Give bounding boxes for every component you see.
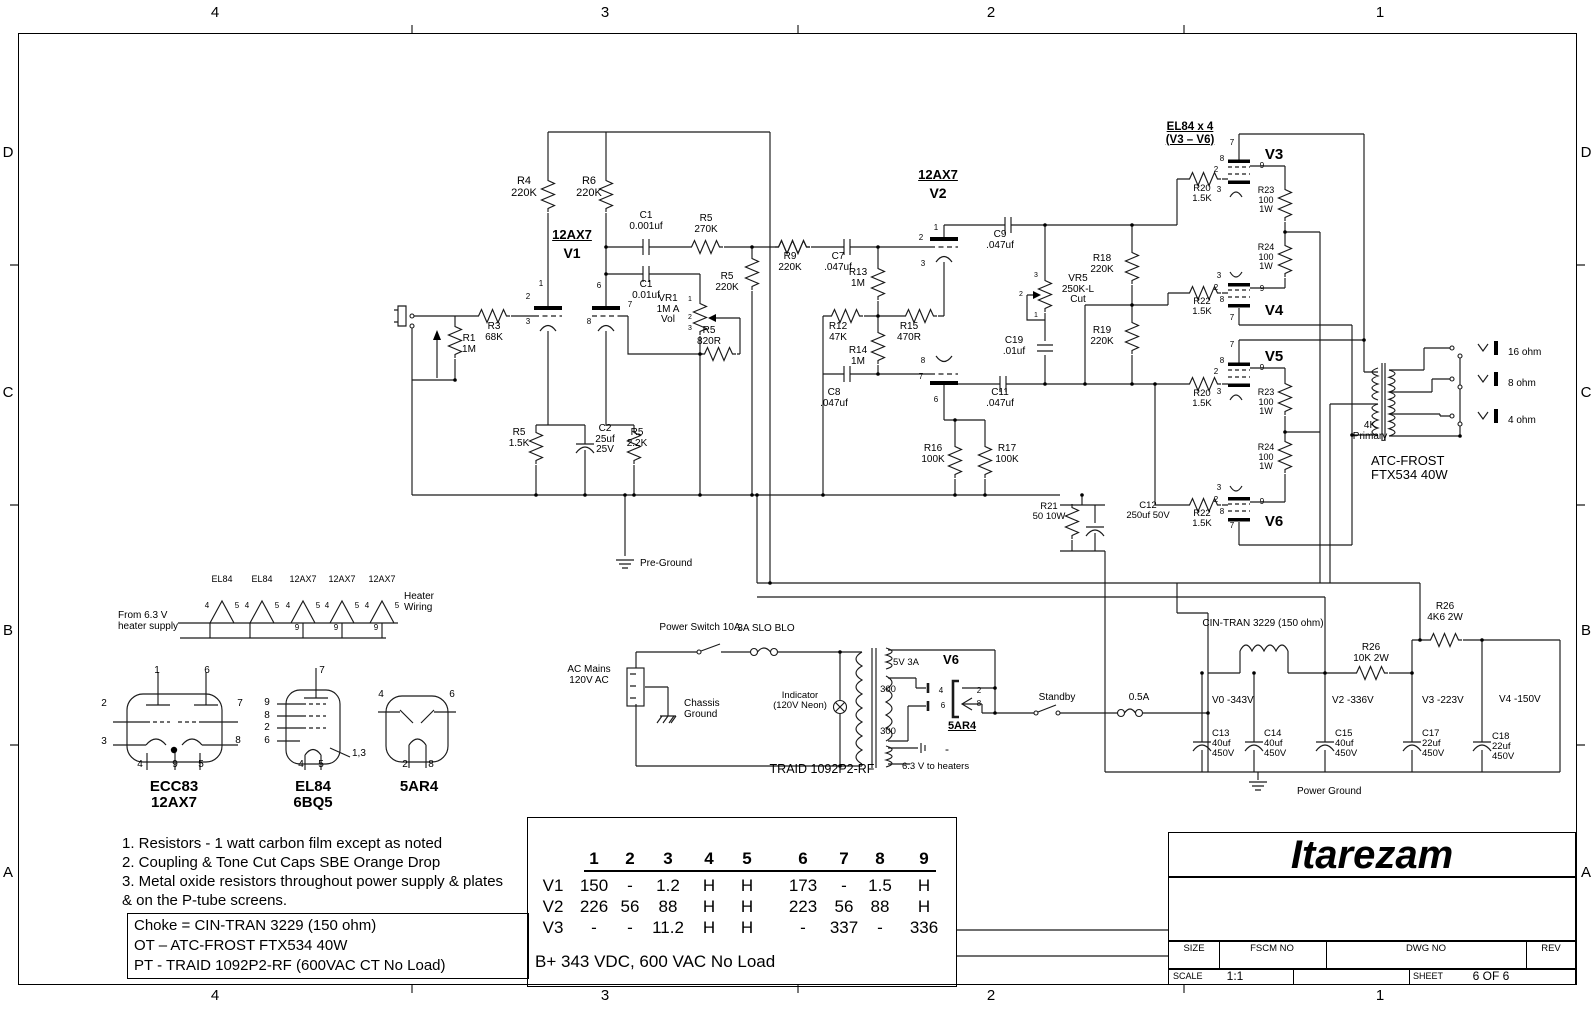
vt-cell: H xyxy=(703,897,715,917)
r12-label: R12 47K xyxy=(829,322,847,343)
r22a-label: R22 1.5K xyxy=(1192,297,1212,317)
sch-label: 8 xyxy=(587,318,591,327)
sch-label: 3 xyxy=(1217,484,1221,493)
v2-name: V2 xyxy=(929,186,946,201)
c13-label: C13 40uf 450V xyxy=(1212,729,1234,759)
sch-label: 1 xyxy=(934,224,938,233)
vt-cell: 1.2 xyxy=(656,876,680,896)
vt-cell: 150 xyxy=(580,876,608,896)
sch-label: 7 xyxy=(319,666,325,677)
sch-label: 4 xyxy=(378,690,384,701)
c18-label: C18 22uf 450V xyxy=(1492,732,1514,762)
power-transformer-icon xyxy=(856,648,892,768)
sch-label: 6 xyxy=(204,666,210,677)
sch-label: 12AX7 xyxy=(328,575,355,585)
rev-label: REV xyxy=(1541,943,1561,954)
r14-label: R14 1M xyxy=(849,346,867,367)
note-line: 3. Metal oxide resistors throughout powe… xyxy=(122,872,503,891)
standby-label: Standby xyxy=(1039,693,1076,704)
sch-label: 2 xyxy=(919,234,923,243)
sch-label: 4 xyxy=(939,687,943,696)
sch-label: 2 xyxy=(1019,291,1023,298)
r26b-label: R26 4K6 2W xyxy=(1427,602,1463,623)
el84-group2: (V3 – V6) xyxy=(1166,134,1215,146)
zone-bottom: 4 xyxy=(211,987,219,1004)
sch-label: 4 xyxy=(365,602,369,611)
note-line: 2. Coupling & Tone Cut Caps SBE Orange D… xyxy=(122,853,503,872)
standby-fuse-label: 0.5A xyxy=(1129,693,1150,704)
pt-5v-label: 5V 3A xyxy=(893,658,919,668)
c7-label: C7 .047uf xyxy=(824,252,852,273)
sch-label: 12AX7 xyxy=(368,575,395,585)
sch-label: 8 xyxy=(921,357,925,366)
r23a-label: R23 100 1W xyxy=(1258,186,1275,215)
sch-label: 6 xyxy=(934,396,938,405)
sch-label: 3 xyxy=(921,260,925,269)
sch-label: 1 xyxy=(154,666,160,677)
v3-tube-icon xyxy=(1228,160,1250,198)
r6-label: R6 220K xyxy=(576,176,602,200)
sch-label: 300 xyxy=(880,727,896,737)
sch-label: 2 xyxy=(688,314,692,321)
title-block-scale-row: SCALE 1:1 SHEET 6 OF 6 xyxy=(1168,968,1576,985)
r24b-label: R24 100 1W xyxy=(1258,443,1275,472)
sch-label: 8 xyxy=(1220,296,1224,305)
pre-ground-icon xyxy=(616,560,634,568)
sch-label: 7 xyxy=(237,699,243,710)
vt-cell: H xyxy=(918,897,930,917)
build-box: Choke = CIN-TRAN 3229 (150 ohm)OT – ATC-… xyxy=(127,913,529,979)
r19-label: R19 220K xyxy=(1090,326,1113,347)
ac-plug-icon xyxy=(627,668,644,706)
schematic-sheet: R4 220KR6 220K12AX7V1C1 0.001ufR5 270KC1… xyxy=(0,0,1596,1022)
sch-label: EL84 xyxy=(211,575,232,585)
build-line: PT - TRAID 1092P2-RF (600VAC CT No Load) xyxy=(134,956,528,976)
r18-label: R18 220K xyxy=(1090,254,1113,275)
c17-label: C17 22uf 450V xyxy=(1422,729,1444,759)
tap-16: 16 ohm xyxy=(1508,348,1541,359)
r4-label: R4 220K xyxy=(511,176,537,200)
sch-label: 5 xyxy=(318,760,324,771)
vt-cell: 173 xyxy=(789,876,817,896)
note-line: 1. Resistors - 1 watt carbon film except… xyxy=(122,834,503,853)
size-label: SIZE xyxy=(1183,943,1204,954)
sch-label: 5 xyxy=(316,602,320,611)
vt-header-cell: 3 xyxy=(663,849,672,869)
r21-label: R21 50 10W xyxy=(1033,502,1066,522)
vt-header-cell: 8 xyxy=(875,849,884,869)
vt-cell: H xyxy=(741,876,753,896)
vt-cell: 88 xyxy=(871,897,890,917)
sch-label: 2 xyxy=(101,699,107,710)
sch-label: 7 xyxy=(1230,522,1234,531)
speaker-jacks xyxy=(1450,341,1498,426)
choke-icon xyxy=(1240,645,1288,651)
arrow-up-icon xyxy=(433,330,441,340)
sch-label: 4 xyxy=(245,602,249,611)
neon-lamp-icon xyxy=(834,701,847,714)
sch-label: 1 xyxy=(539,280,543,289)
c9-label: C9 .047uf xyxy=(986,230,1014,251)
jack-16ohm-icon xyxy=(1450,341,1498,358)
standby-switch-icon xyxy=(1034,705,1060,715)
mains-fuse-icon xyxy=(751,648,778,656)
sch-label: 9 xyxy=(1260,285,1264,294)
r20a-label: R20 1.5K xyxy=(1192,184,1212,204)
sch-label: 9 xyxy=(1260,364,1264,373)
v4-tube-icon xyxy=(1228,272,1250,308)
v3-node: V3 -223V xyxy=(1422,696,1464,707)
zone-left: B xyxy=(3,622,13,639)
vt-cell: 337 xyxy=(830,918,858,938)
sch-label: 7 xyxy=(1230,314,1234,323)
sch-label: 3 xyxy=(1217,186,1221,195)
sch-label: 5 xyxy=(275,602,279,611)
el84-pinout-icon xyxy=(277,668,350,770)
vt-cell: H xyxy=(741,918,753,938)
5ar4-name: 5AR4 xyxy=(400,779,438,795)
zone-top: 1 xyxy=(1376,4,1384,21)
sch-label: 300 xyxy=(880,685,896,695)
sch-label: 4 xyxy=(298,760,304,771)
sch-label: 5 xyxy=(355,602,359,611)
sch-label: 3 xyxy=(1217,272,1221,281)
drawing-title: Itarezam xyxy=(1291,833,1453,878)
vt-cell: - xyxy=(627,876,633,896)
sch-label: 9 xyxy=(334,624,338,633)
zone-top: 4 xyxy=(211,4,219,21)
r13-label: R13 1M xyxy=(849,268,867,289)
sch-label: 2 xyxy=(1214,368,1218,377)
c12-label: C12 250uf 50V xyxy=(1126,501,1169,521)
ot-primary-label: 4K Primary xyxy=(1353,421,1387,442)
sch-label: 7 xyxy=(1230,139,1234,148)
power-ground-icon xyxy=(1249,782,1267,790)
c19-label: C19 .01uf xyxy=(1003,336,1025,357)
sheet-value: 6 OF 6 xyxy=(1473,969,1510,983)
v1-name: V1 xyxy=(563,246,580,261)
table-header-rule xyxy=(584,870,936,872)
r16-label: R16 100K xyxy=(921,444,944,465)
vt-cell: H xyxy=(703,876,715,896)
sch-label: 12AX7 xyxy=(289,575,316,585)
r9-label: R9 220K xyxy=(778,252,801,273)
sch-label: 6 xyxy=(597,282,601,291)
sch-label: 2 xyxy=(264,723,270,734)
zone-right: B xyxy=(1581,622,1591,639)
fscm-label: FSCM NO xyxy=(1250,943,1294,954)
c15-label: C15 40uf 450V xyxy=(1335,729,1357,759)
sch-label: 4 xyxy=(137,760,143,771)
zone-right: A xyxy=(1581,864,1591,881)
r20b-label: R20 1.5K xyxy=(1192,389,1212,409)
vt-header-cell: 2 xyxy=(625,849,634,869)
sch-label: 8 xyxy=(264,711,270,722)
vt-row-label: V3 xyxy=(543,918,564,938)
v6-tube-icon xyxy=(1228,486,1250,522)
vt-cell: 223 xyxy=(789,897,817,917)
vt-cell: 226 xyxy=(580,897,608,917)
el84-group: EL84 x 4 xyxy=(1167,121,1214,133)
dwg-label: DWG NO xyxy=(1406,943,1446,954)
vr5-label: VR5 250K-L Cut xyxy=(1062,274,1094,306)
zone-left: A xyxy=(3,864,13,881)
r1-label: R1 1M xyxy=(462,334,476,355)
rectifier-5ar4-icon xyxy=(928,681,972,717)
sch-label: 7 xyxy=(1230,341,1234,350)
sch-label: 8 xyxy=(428,760,434,771)
bplus-note: B+ 343 VDC, 600 VAC No Load xyxy=(535,952,775,972)
r3-label: R3 68K xyxy=(485,322,503,343)
sch-label: 2 xyxy=(1214,166,1218,175)
standby-fuse-icon xyxy=(1118,709,1143,717)
sch-label: 2 xyxy=(977,687,981,696)
sch-label: - xyxy=(945,743,949,756)
jack-4ohm-icon xyxy=(1450,409,1498,426)
jack-8ohm-icon xyxy=(1450,372,1498,389)
sch-label: 3 xyxy=(101,737,107,748)
vt-row-label: V2 xyxy=(543,897,564,917)
sch-label: 3 xyxy=(1034,272,1038,279)
vt-cell: 56 xyxy=(835,897,854,917)
vr1-wiper-arrow-icon xyxy=(708,314,716,322)
sch-label: 5 xyxy=(235,602,239,611)
c11-label: C11 .047uf xyxy=(986,388,1014,409)
power-ground-label: Power Ground xyxy=(1297,787,1361,798)
r15-label: R15 470R xyxy=(897,322,921,343)
zone-bottom: 2 xyxy=(987,987,995,1004)
vt-cell: H xyxy=(918,876,930,896)
vr5-wiper-arrow-icon xyxy=(1033,291,1041,299)
title-block-empty xyxy=(1168,876,1576,942)
power-switch-label: Power Switch 10A xyxy=(659,623,740,634)
c14-label: C14 40uf 450V xyxy=(1264,729,1286,759)
vt-header-cell: 5 xyxy=(742,849,751,869)
r5-820-label: R5 820R xyxy=(697,326,721,347)
r5-22k-label: R5 2.2K xyxy=(627,428,648,449)
output-stage xyxy=(1186,134,1498,583)
title-block-name: Itarezam xyxy=(1168,832,1576,878)
scale-value: 1:1 xyxy=(1227,969,1244,983)
mains-fuse-label: 3A SLO BLO xyxy=(737,624,794,635)
sch-label: EL84 xyxy=(251,575,272,585)
vt-header-cell: 9 xyxy=(919,849,928,869)
vt-header-cell: 6 xyxy=(798,849,807,869)
v1-stage xyxy=(394,132,1060,583)
ac-mains-label: AC Mains 120V AC xyxy=(567,665,610,686)
v3-name: V3 xyxy=(1265,147,1283,163)
sch-label: 5 xyxy=(395,602,399,611)
sch-label: 1 xyxy=(1034,312,1038,319)
vt-cell: - xyxy=(627,918,633,938)
sch-label: 9 xyxy=(1260,162,1264,171)
sch-label: 6 xyxy=(264,736,270,747)
5ar4-pinout-icon xyxy=(378,696,456,768)
v2-type: 12AX7 xyxy=(918,168,958,182)
sheet-label: SHEET xyxy=(1413,971,1443,981)
voltage-table: B+ 343 VDC, 600 VAC No Load 123456789V11… xyxy=(527,817,957,987)
ecc83-name: ECC83 12AX7 xyxy=(150,779,198,811)
tap-8: 8 ohm xyxy=(1508,379,1536,390)
vt-cell: - xyxy=(841,876,847,896)
vt-header-cell: 7 xyxy=(839,849,848,869)
vt-cell: 88 xyxy=(659,897,678,917)
c8-label: C8 .047uf xyxy=(820,388,848,409)
r5-220-label: R5 220K xyxy=(715,272,738,293)
build-line: Choke = CIN-TRAN 3229 (150 ohm) xyxy=(134,916,528,936)
input-jack-icon xyxy=(394,306,414,328)
sch-label: 6 xyxy=(449,690,455,701)
v1-tube-icon xyxy=(534,306,620,331)
sch-label: 9 xyxy=(264,698,270,709)
vt-cell: 11.2 xyxy=(652,918,684,938)
sch-label: 9 xyxy=(295,624,299,633)
sch-label: 8 xyxy=(1220,508,1224,517)
vt-cell: 336 xyxy=(910,918,938,938)
r17-label: R17 100K xyxy=(995,444,1018,465)
zone-top: 3 xyxy=(601,4,609,21)
ecc83-pinout-icon xyxy=(113,672,238,770)
sch-label: 8 xyxy=(977,700,981,709)
tube-pinouts xyxy=(113,668,456,770)
power-switch-icon xyxy=(697,644,720,654)
sch-label: 2 xyxy=(526,293,530,302)
zone-left: C xyxy=(3,384,14,401)
heaters-63-label: 6.3 V to heaters xyxy=(902,762,969,772)
r24a-label: R24 100 1W xyxy=(1258,243,1275,272)
v2-node: V2 -336V xyxy=(1332,696,1374,707)
vt-cell: 1.5 xyxy=(868,876,892,896)
sch-label: 4 xyxy=(205,602,209,611)
sch-label: 2 xyxy=(1214,496,1218,505)
zone-left: D xyxy=(3,144,14,161)
indicator-label: Indicator (120V Neon) xyxy=(773,691,827,711)
r5-15k-label: R5 1.5K xyxy=(509,428,530,449)
zone-right: C xyxy=(1581,384,1592,401)
heater-wiring-label: Heater Wiring xyxy=(404,592,434,613)
sch-label: 8 xyxy=(1220,357,1224,366)
sch-label: 9 xyxy=(172,760,178,771)
vt-cell: - xyxy=(800,918,806,938)
notes-block: 1. Resistors - 1 watt carbon film except… xyxy=(122,834,503,910)
sch-label: 3 xyxy=(526,318,530,327)
pt-label: TRAID 1092P2-RF xyxy=(770,763,875,776)
zone-bottom: 1 xyxy=(1376,987,1384,1004)
r22b-label: R22 1.5K xyxy=(1192,509,1212,529)
v5-name: V5 xyxy=(1265,349,1283,365)
vt-cell: - xyxy=(877,918,883,938)
sch-label: 4 xyxy=(286,602,290,611)
sch-label: 7 xyxy=(628,301,632,310)
v4-node: V4 -150V xyxy=(1499,695,1541,706)
rect-type: 5AR4 xyxy=(948,721,976,733)
chassis-ground-icon xyxy=(657,716,676,723)
vt-cell: - xyxy=(591,918,597,938)
r5-270-label: R5 270K xyxy=(694,214,717,235)
zone-top: 2 xyxy=(987,4,995,21)
rect-name: V6 xyxy=(943,653,959,667)
choke-label: CIN-TRAN 3229 (150 ohm) xyxy=(1202,619,1323,630)
vt-row-label: V1 xyxy=(543,876,564,896)
v5-tube-icon xyxy=(1228,363,1250,401)
vt-cell: H xyxy=(741,897,753,917)
sch-label: 9 xyxy=(1260,498,1264,507)
title-block-size-row: SIZE FSCM NO DWG NO REV xyxy=(1168,940,1576,970)
sch-label: 1,3 xyxy=(352,749,366,760)
sch-label: 4 xyxy=(325,602,329,611)
sch-label: 7 xyxy=(919,373,923,382)
vr1-label: VR1 1M A Vol xyxy=(657,294,680,326)
zone-bottom: 3 xyxy=(601,987,609,1004)
v1-type: 12AX7 xyxy=(552,228,592,242)
c1a-label: C1 0.001uf xyxy=(629,211,662,232)
scale-label: SCALE xyxy=(1173,971,1203,981)
c2-label: C2 25uf 25V xyxy=(595,424,614,456)
r23b-label: R23 100 1W xyxy=(1258,388,1275,417)
sch-label: 6 xyxy=(941,702,945,711)
v0-node: V0 -343V xyxy=(1212,696,1254,707)
sch-label: 3 xyxy=(1217,388,1221,397)
ot-label: ATC-FROST FTX534 40W xyxy=(1371,454,1448,482)
note-line: & on the P-tube screens. xyxy=(122,891,503,910)
vt-header-cell: 1 xyxy=(589,849,598,869)
vt-header-cell: 4 xyxy=(704,849,713,869)
chassis-ground-label: Chassis Ground xyxy=(684,699,720,720)
vt-cell: H xyxy=(703,918,715,938)
v6-name: V6 xyxy=(1265,514,1283,530)
heater-supply-label: From 6.3 V heater supply xyxy=(118,611,178,632)
v4-name: V4 xyxy=(1265,303,1283,319)
sch-label: 8 xyxy=(235,736,241,747)
sch-label: 3 xyxy=(688,325,692,332)
el84-name: EL84 6BQ5 xyxy=(293,779,332,811)
vt-cell: 56 xyxy=(621,897,640,917)
sch-label: 9 xyxy=(374,624,378,633)
r26a-label: R26 10K 2W xyxy=(1353,643,1389,664)
sch-label: 8 xyxy=(1220,155,1224,164)
sch-label: 2 xyxy=(402,760,408,771)
sch-label: 2 xyxy=(1214,284,1218,293)
sch-label: 5 xyxy=(198,760,204,771)
tap-4: 4 ohm xyxy=(1508,416,1536,427)
pre-ground-label: Pre-Ground xyxy=(640,559,692,570)
zone-right: D xyxy=(1581,144,1592,161)
sch-label: 1 xyxy=(688,296,692,303)
build-line: OT – ATC-FROST FTX534 40W xyxy=(134,936,528,956)
